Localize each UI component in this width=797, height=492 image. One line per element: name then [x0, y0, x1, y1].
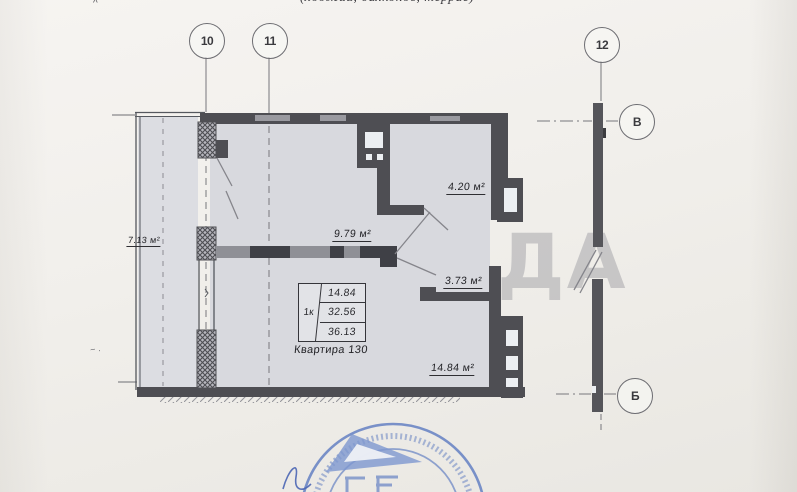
axis-label-11: 11	[264, 34, 276, 48]
scanned-floor-plan-page: (лоджии, балконов, террас) ^ ~ . ДА	[0, 0, 797, 492]
room-label-bathroom: 4.20 м²	[446, 181, 486, 195]
axis-circle-10: 10	[189, 23, 225, 59]
room-label-living: 14.84 м²	[429, 362, 476, 376]
room-label-hallway: 9.79 м²	[332, 228, 372, 242]
room-label-closet: 3.73 м²	[443, 275, 483, 289]
apartment-caption: Квартира 130	[280, 344, 381, 356]
axis-label-12: 12	[596, 38, 608, 52]
axis-label-b: Б	[631, 389, 639, 403]
axis-circle-b: Б	[617, 378, 653, 414]
axis-circle-12: 12	[584, 27, 620, 63]
axis-label-10: 10	[201, 34, 213, 48]
total-area-cell: 36.13	[318, 322, 366, 341]
apartment-info-table: 1к 14.84 32.56 36.13	[298, 283, 366, 342]
axis-circle-11: 11	[252, 23, 288, 59]
area-cells: 14.84 32.56 36.13	[319, 284, 365, 341]
watermark-text: ДА	[497, 217, 628, 306]
stamp-center-letters	[345, 477, 398, 492]
axis-label-v: В	[633, 115, 641, 129]
blue-round-stamp	[283, 424, 485, 492]
living-area-cell: 14.84	[318, 284, 366, 302]
room-label-loggia: 7.13 м²	[126, 235, 161, 247]
axis-circle-v: В	[619, 104, 655, 140]
floor-plan-drawing: ДА	[0, 0, 797, 492]
apartment-area-cell: 32.56	[318, 302, 366, 321]
